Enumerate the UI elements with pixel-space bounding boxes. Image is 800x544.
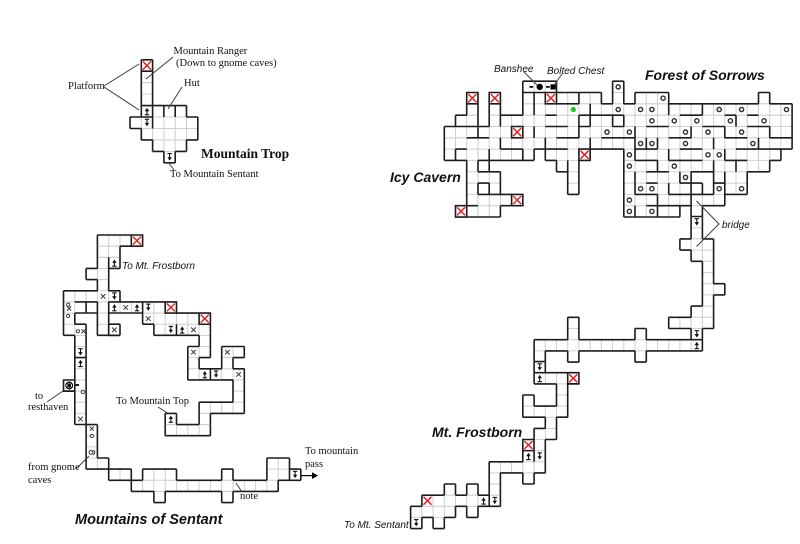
svg-text:(Down to gnome caves): (Down to gnome caves) (176, 58, 277, 69)
svg-text:resthaven: resthaven (28, 402, 69, 413)
svg-text:from gnome: from gnome (28, 462, 80, 473)
svg-text:bridge: bridge (722, 220, 750, 231)
svg-text:Forest of Sorrows: Forest of Sorrows (645, 67, 765, 83)
svg-text:pass: pass (305, 459, 323, 470)
svg-text:To Mt. Sentant: To Mt. Sentant (344, 520, 410, 531)
svg-text:Mountain Trop: Mountain Trop (201, 146, 289, 161)
svg-text:To Mountain Sentant: To Mountain Sentant (170, 169, 259, 180)
svg-text:Mountain Ranger: Mountain Ranger (174, 46, 248, 57)
svg-text:To Mt. Frostborn: To Mt. Frostborn (122, 261, 195, 272)
svg-text:Banshee: Banshee (494, 64, 534, 75)
svg-text:caves: caves (28, 475, 51, 486)
svg-text:Mt. Frostborn: Mt. Frostborn (432, 424, 522, 440)
svg-text:Platform: Platform (68, 81, 105, 92)
svg-text:to: to (35, 391, 43, 402)
svg-text:Bolted Chest: Bolted Chest (547, 66, 605, 77)
svg-text:To Mountain Top: To Mountain Top (116, 396, 189, 407)
svg-text:Mountains of Sentant: Mountains of Sentant (75, 512, 224, 528)
svg-text:note: note (240, 491, 258, 502)
svg-text:Icy Cavern: Icy Cavern (390, 169, 461, 185)
svg-text:To mountain: To mountain (305, 446, 359, 457)
svg-text:Hut: Hut (184, 78, 200, 89)
